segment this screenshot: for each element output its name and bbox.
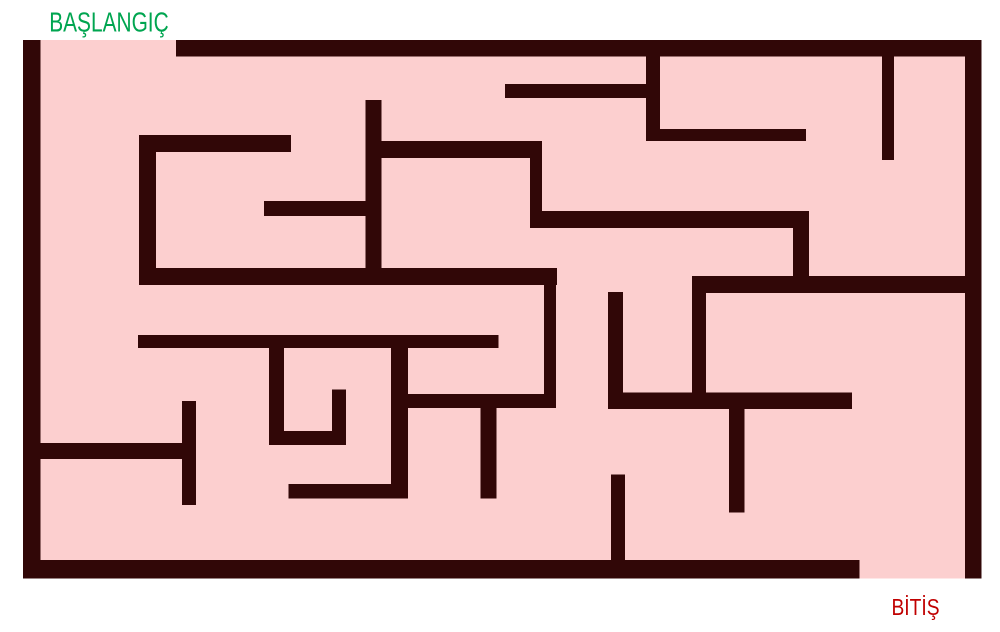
svg-text:BİTİŞ: BİTİŞ [892,594,940,620]
svg-text:BAŞLANGIÇ: BAŞLANGIÇ [49,7,169,38]
